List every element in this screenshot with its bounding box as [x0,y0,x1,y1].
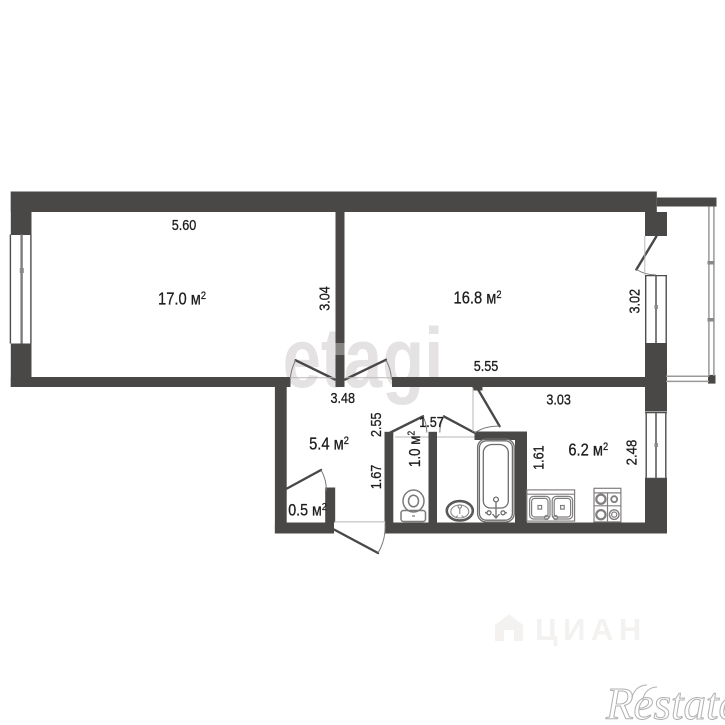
svg-text:1.61: 1.61 [530,445,547,470]
svg-text:1.67: 1.67 [367,465,384,490]
svg-text:1.0 м2: 1.0 м2 [406,431,424,467]
svg-text:16.8 м2: 16.8 м2 [454,289,502,308]
svg-text:3.48: 3.48 [331,389,356,406]
svg-text:1.57: 1.57 [419,413,444,430]
svg-text:0.5 м2: 0.5 м2 [288,502,327,520]
svg-text:2.55: 2.55 [367,412,384,437]
svg-text:2.48: 2.48 [623,440,640,466]
svg-text:3.03: 3.03 [546,390,571,407]
svg-text:3.02: 3.02 [625,289,642,314]
svg-text:ЦИАН: ЦИАН [535,612,647,647]
svg-text:5.55: 5.55 [474,357,499,374]
svg-text:Restate: Restate [605,679,725,725]
svg-text:5.4 м2: 5.4 м2 [309,434,349,453]
svg-text:3.04: 3.04 [315,286,332,311]
svg-text:6.2 м2: 6.2 м2 [568,440,608,459]
svg-text:5.60: 5.60 [172,216,197,233]
svg-text:etagi: etagi [283,312,444,406]
svg-text:17.0 м2: 17.0 м2 [158,289,206,308]
